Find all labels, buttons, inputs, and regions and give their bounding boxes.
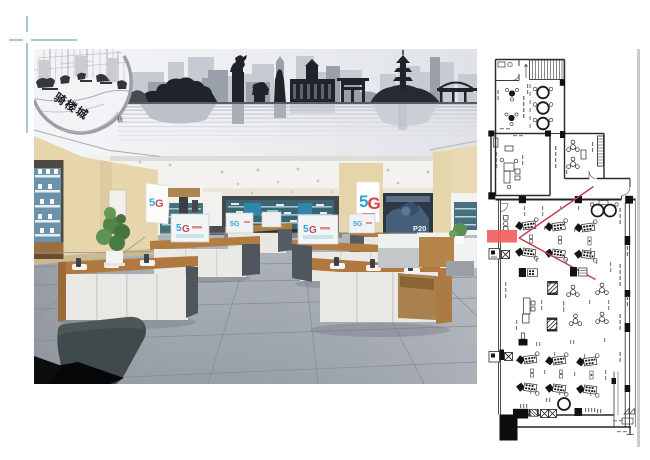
svg-text:G: G	[182, 224, 190, 235]
svg-text:P20: P20	[413, 224, 426, 233]
svg-text:G: G	[155, 198, 164, 210]
svg-text:G: G	[368, 194, 381, 213]
svg-text:梧: 梧	[117, 116, 123, 124]
svg-text:5G: 5G	[230, 221, 240, 228]
svg-text:G: G	[309, 225, 317, 236]
svg-text:5G: 5G	[353, 221, 363, 228]
